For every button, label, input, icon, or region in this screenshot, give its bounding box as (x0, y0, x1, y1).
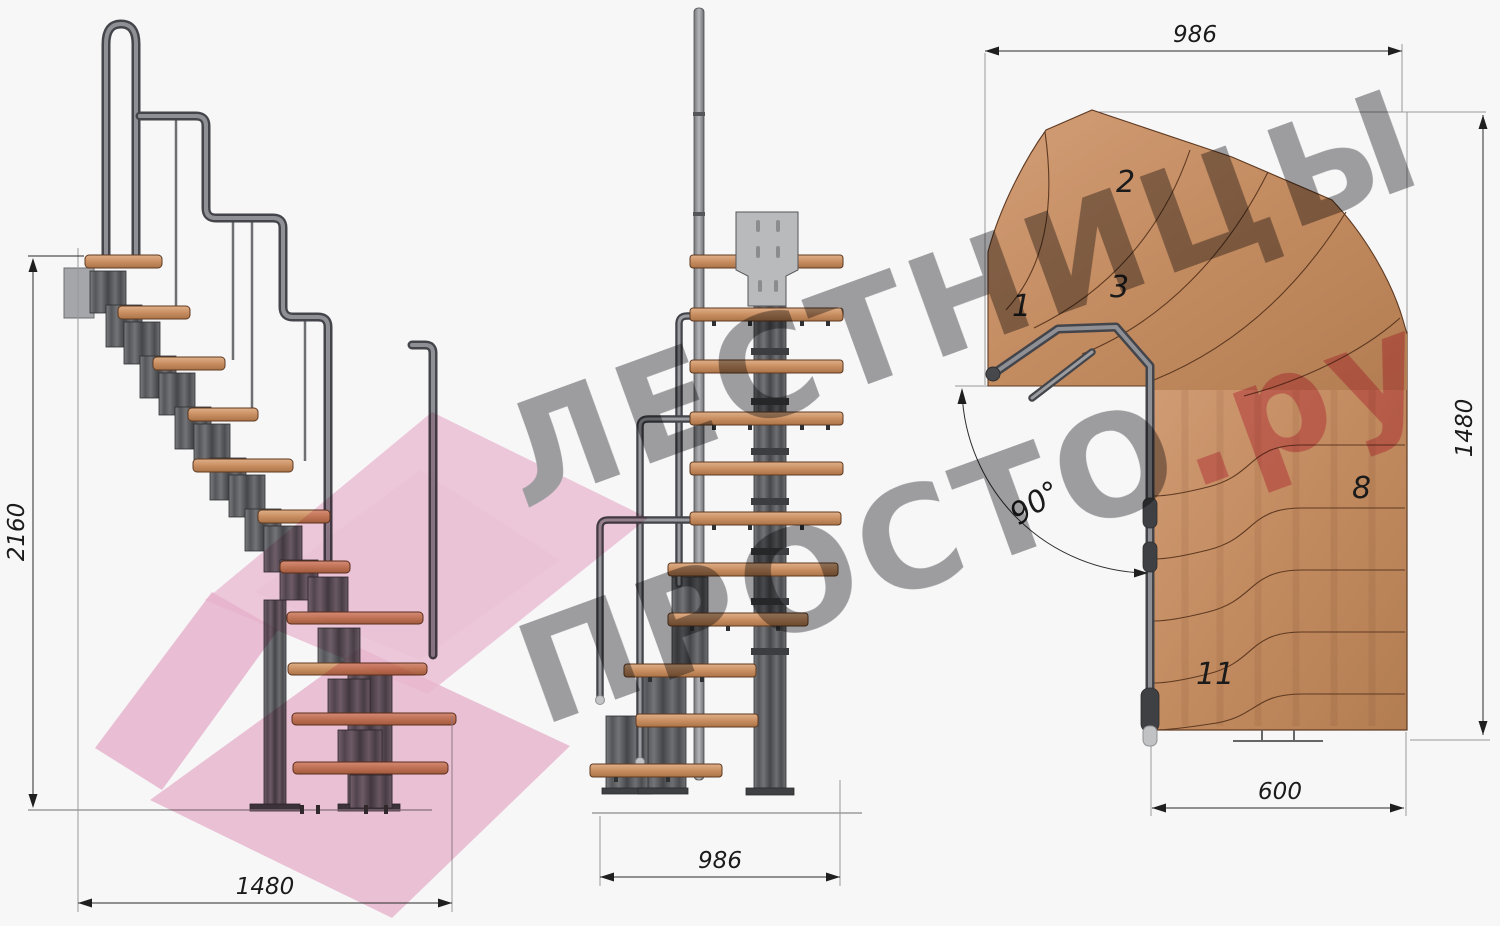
plan-base-feet (1233, 730, 1323, 741)
tread-label-11: 11 (1196, 657, 1234, 692)
dim-plan-top: 986 (985, 22, 1402, 56)
dim-front-width: 986 (600, 848, 840, 882)
dim-plan-bottom-value: 600 (1258, 779, 1302, 805)
pole-joint (693, 112, 705, 116)
dim-plan-top-value: 986 (1173, 22, 1217, 48)
dim-side-height-value: 2160 (4, 503, 30, 562)
staircase-technical-drawing: 90° 1 2 3 8 11 ЛЕСТНИЦЫ ПРОСТО .ру 2160 (0, 0, 1500, 926)
handrail-joint (1143, 542, 1157, 572)
dim-plan-right: 1480 (1452, 115, 1488, 735)
handrail-end-cap (1143, 726, 1157, 746)
dim-front-width-value: 986 (698, 848, 742, 874)
tread-label-8: 8 (1352, 471, 1371, 506)
drawing-canvas: 90° 1 2 3 8 11 ЛЕСТНИЦЫ ПРОСТО .ру 2160 (0, 0, 1500, 926)
front-column-base (746, 788, 794, 795)
dim-plan-bottom: 600 (1152, 779, 1404, 813)
dim-side-width-value: 1480 (236, 874, 295, 900)
pole-joint (693, 212, 705, 216)
handrail-joint (1141, 688, 1159, 732)
dim-side-height: 2160 (4, 256, 84, 808)
dim-plan-right-value: 1480 (1452, 399, 1478, 458)
side-wall-bracket (64, 268, 94, 318)
